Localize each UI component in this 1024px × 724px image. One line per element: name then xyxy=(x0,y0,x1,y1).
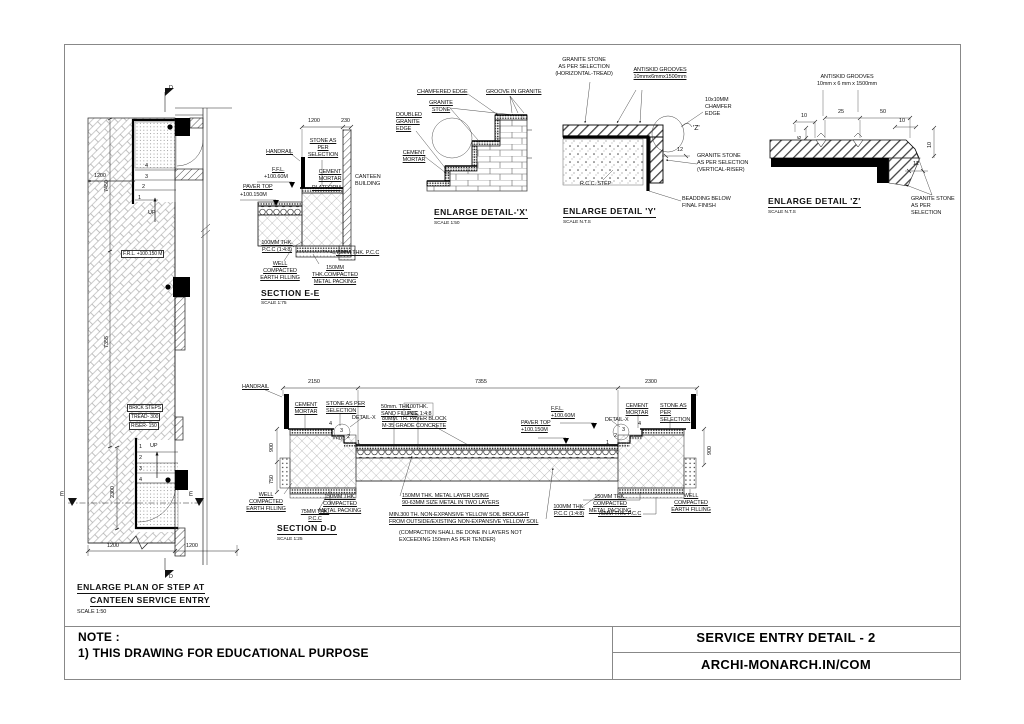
dz-dim-50: 50 xyxy=(880,109,886,116)
see-cement-mortar-label: CEMENT MORTAR xyxy=(316,169,344,183)
sdd-paver-top-label: PAVER TOP +100.150M xyxy=(521,420,551,434)
see-handrail-label: HANDRAIL xyxy=(266,149,293,156)
dy-dim-12: 12 xyxy=(677,147,683,154)
see-canteen-building-label: CANTEEN BUILDING xyxy=(355,174,381,188)
dx-granite-stone-label: GRANITE STONE xyxy=(428,100,454,114)
sdd-pcc75-right-label: 75MM THK. P.C.C xyxy=(598,511,641,518)
dx-title: ENLARGE DETAIL-'X' xyxy=(434,208,528,219)
plan-frl-label: F.R.L. +100.150 M xyxy=(121,250,164,258)
dx-cement-mortar-label: CEMENT MORTAR xyxy=(400,150,428,164)
dy-scale: SCALE N.T.S xyxy=(563,220,591,226)
plan-dim-2300: 2300 xyxy=(110,486,117,498)
sdd-dim-750: 750 xyxy=(269,475,276,484)
sdd-step-l2: 2 xyxy=(347,434,350,441)
dz-antiskid-label: ANTISKID GROOVES 10mm x 6 mm x 1500mm xyxy=(817,74,877,88)
sdd-detail-x-right-label: DETAIL-X xyxy=(605,417,629,424)
dy-title: ENLARGE DETAIL 'Y' xyxy=(563,207,656,218)
sdd-step-r2: 2 xyxy=(614,433,617,440)
see-paver-top-value: +100.150M xyxy=(240,192,267,199)
dz-dim-12: 12 xyxy=(913,161,919,168)
sdd-compaction-label: (COMPACTION SHALL BE DONE IN LAYERS NOT … xyxy=(399,530,522,544)
sdd-earth-left-label: WELL COMPACTED EARTH FILLING xyxy=(243,492,289,513)
plan-step-4: 4 xyxy=(145,163,148,170)
see-stone-label: STONE AS PER SELECTION xyxy=(306,138,340,159)
plan-step-b4: 4 xyxy=(139,477,142,484)
plan-marker-e-right: E xyxy=(189,492,193,500)
sdd-step-l3: 3 xyxy=(340,428,343,435)
sdd-detail-x-left-label: DETAIL-X xyxy=(352,415,376,422)
plan-scale: SCALE 1:50 xyxy=(77,609,106,616)
see-paver-top-label: PAVER TOP xyxy=(243,184,273,191)
sdd-handrail-label: HANDRAIL xyxy=(242,384,269,391)
sdd-ffl-label: F.F.L. +100.60M xyxy=(551,406,575,420)
see-dim-230: 230 xyxy=(341,118,350,125)
dz-granite-label: GRANITE STONE AS PER SELECTION xyxy=(911,196,955,217)
plan-riser-label: RISER- 150 xyxy=(129,422,159,430)
drawing-canvas xyxy=(0,0,1024,724)
sdd-dim-7355: 7355 xyxy=(475,379,487,386)
plan-dim-7355: 7355 xyxy=(104,336,111,348)
dy-z-ref: 'Z' xyxy=(693,125,700,134)
sdd-soil-label: MIN.300 TH. NON-EXPANSIVE YELLOW SOIL BR… xyxy=(389,512,538,526)
titleblock-mid-divider xyxy=(612,652,960,653)
plan-graphics xyxy=(68,88,239,578)
plan-step-1: 1 xyxy=(138,195,141,202)
sdd-paver-block-label: 80MM. TH. PAVER BLOCK M-35 GRADE CONCRET… xyxy=(382,416,447,430)
sdd-step-r1: 1 xyxy=(606,440,609,447)
plan-dim-7450: 7450 xyxy=(104,180,111,192)
dy-rcc-step-label: R.C.C. STEP xyxy=(580,181,611,188)
plan-brick-steps-label: BRICK STEPS xyxy=(127,404,163,412)
sdd-cement-left-label: CEMENT MORTAR xyxy=(294,402,318,416)
sheet-title: SERVICE ENTRY DETAIL - 2 xyxy=(696,630,875,646)
dx-chamfered-edge-label: CHAMFERED EDGE xyxy=(417,89,468,96)
plan-up-bottom: UP xyxy=(150,443,157,450)
see-ffl-value: +100.60M xyxy=(264,174,288,181)
dy-granite-horizontal-label: GRANITE STONE AS PER SELECTION (HORIZONT… xyxy=(553,57,615,78)
sheet-website: ARCHI-MONARCH.IN/COM xyxy=(701,657,871,673)
dz-dim-10a: 10 xyxy=(801,113,807,120)
sdd-step-r3: 3 xyxy=(622,427,625,434)
dy-granite-vertical-label: GRANITE STONE AS PER SELECTION (VERTICAL… xyxy=(697,153,748,174)
plan-step-b2: 2 xyxy=(139,455,142,462)
dz-dim-6: 6 xyxy=(797,136,804,139)
note-heading: NOTE : xyxy=(78,630,120,644)
see-pcc75-label: 75MM THK. P.C.C xyxy=(336,250,379,257)
see-platform-label: PLATFORM xyxy=(312,185,341,192)
dz-scale: SCALE N.T.S xyxy=(768,210,796,216)
plan-marker-e-left: E xyxy=(60,492,64,500)
sdd-dim-2150: 2150 xyxy=(308,379,320,386)
sdd-dim-2300: 2300 xyxy=(645,379,657,386)
dz-title: ENLARGE DETAIL 'Z' xyxy=(768,197,861,208)
see-earth-label: WELL COMPACTED EARTH FILLING xyxy=(256,261,304,282)
plan-title-line1: ENLARGE PLAN OF STEP AT xyxy=(77,583,205,594)
plan-dim-1200-b: 1200 xyxy=(186,543,198,550)
dx-doubled-edge-label: DOUBLED GRANITE EDGE xyxy=(396,112,422,133)
dx-scale: SCALE 1:50 xyxy=(434,221,459,227)
sdd-metal-layer-label: 150MM THK. METAL LAYER USING 90-63MM SIZ… xyxy=(402,493,499,507)
sdd-stone-right-label: STONE AS PER SELECTION xyxy=(660,403,690,424)
see-dim-1200: 1200 xyxy=(308,118,320,125)
plan-marker-d-top: D xyxy=(169,85,173,92)
plan-step-b3: 3 xyxy=(139,466,142,473)
sdd-scale: SCALE 1:25 xyxy=(277,537,302,543)
note-line1: 1) THIS DRAWING FOR EDUCATIONAL PURPOSE xyxy=(78,646,369,660)
dz-dim-10b: 10 xyxy=(899,118,905,125)
plan-tread-label: TREAD- 300 xyxy=(129,413,160,421)
see-ffl-label: F.F.L. xyxy=(272,167,285,174)
sdd-step-r4: 4 xyxy=(638,421,641,428)
dz-dim-10c: 10 xyxy=(927,142,934,148)
sdd-pcc75-left-label: 75MM THK. P.C.C xyxy=(300,509,330,523)
sdd-title: SECTION D-D xyxy=(277,524,337,535)
sdd-stone-left-label: STONE AS PER SELECTION xyxy=(326,401,365,415)
sdd-dim-900-left: 900 xyxy=(269,443,276,452)
dx-groove-label: GROOVE IN GRANITE xyxy=(486,89,541,96)
dy-chamfer-label: 10x10MM CHAMFER EDGE xyxy=(705,97,732,118)
plan-title-line2: CANTEEN SERVICE ENTRY xyxy=(90,596,210,607)
detail-z-graphics xyxy=(770,90,936,195)
drawing-sheet: D 7450 1200 4 3 2 1 UP F.R.L. +100.150 M… xyxy=(0,0,1024,724)
plan-step-2: 2 xyxy=(142,184,145,191)
sdd-dim-900-right: 900 xyxy=(707,446,714,455)
sdd-step-l1: 1 xyxy=(357,440,360,447)
plan-step-3: 3 xyxy=(145,174,148,181)
sdd-step-l4: 4 xyxy=(329,421,332,428)
plan-step-b1: 1 xyxy=(139,444,142,451)
plan-dim-1200-a: 1200 xyxy=(107,543,119,550)
dy-antiskid-label: ANTISKID GROOVES 10mmx6mmx1500mm xyxy=(630,67,690,81)
titleblock-top-divider xyxy=(64,626,960,627)
plan-marker-d-bottom: D xyxy=(169,574,173,581)
dz-dim-25: 25 xyxy=(838,109,844,116)
see-scale: SCALE 1:75 xyxy=(261,301,286,307)
plan-dim-1200: 1200 xyxy=(94,173,106,180)
see-metal-label: 150MM THK.COMPACTED METAL PACKING xyxy=(308,265,362,286)
sdd-cement-right-label: CEMENT MORTAR xyxy=(624,403,650,417)
plan-up-top: UP xyxy=(148,210,155,217)
see-title: SECTION E-E xyxy=(261,289,320,300)
see-pcc100-label: 100MM THK. P.C.C (1:4:8) xyxy=(260,240,294,254)
dy-beading-label: BEADDING BELOW FINAL FINISH xyxy=(682,196,731,210)
sdd-earth-right-label: WELL COMPACTED EARTH FILLING xyxy=(668,493,714,514)
